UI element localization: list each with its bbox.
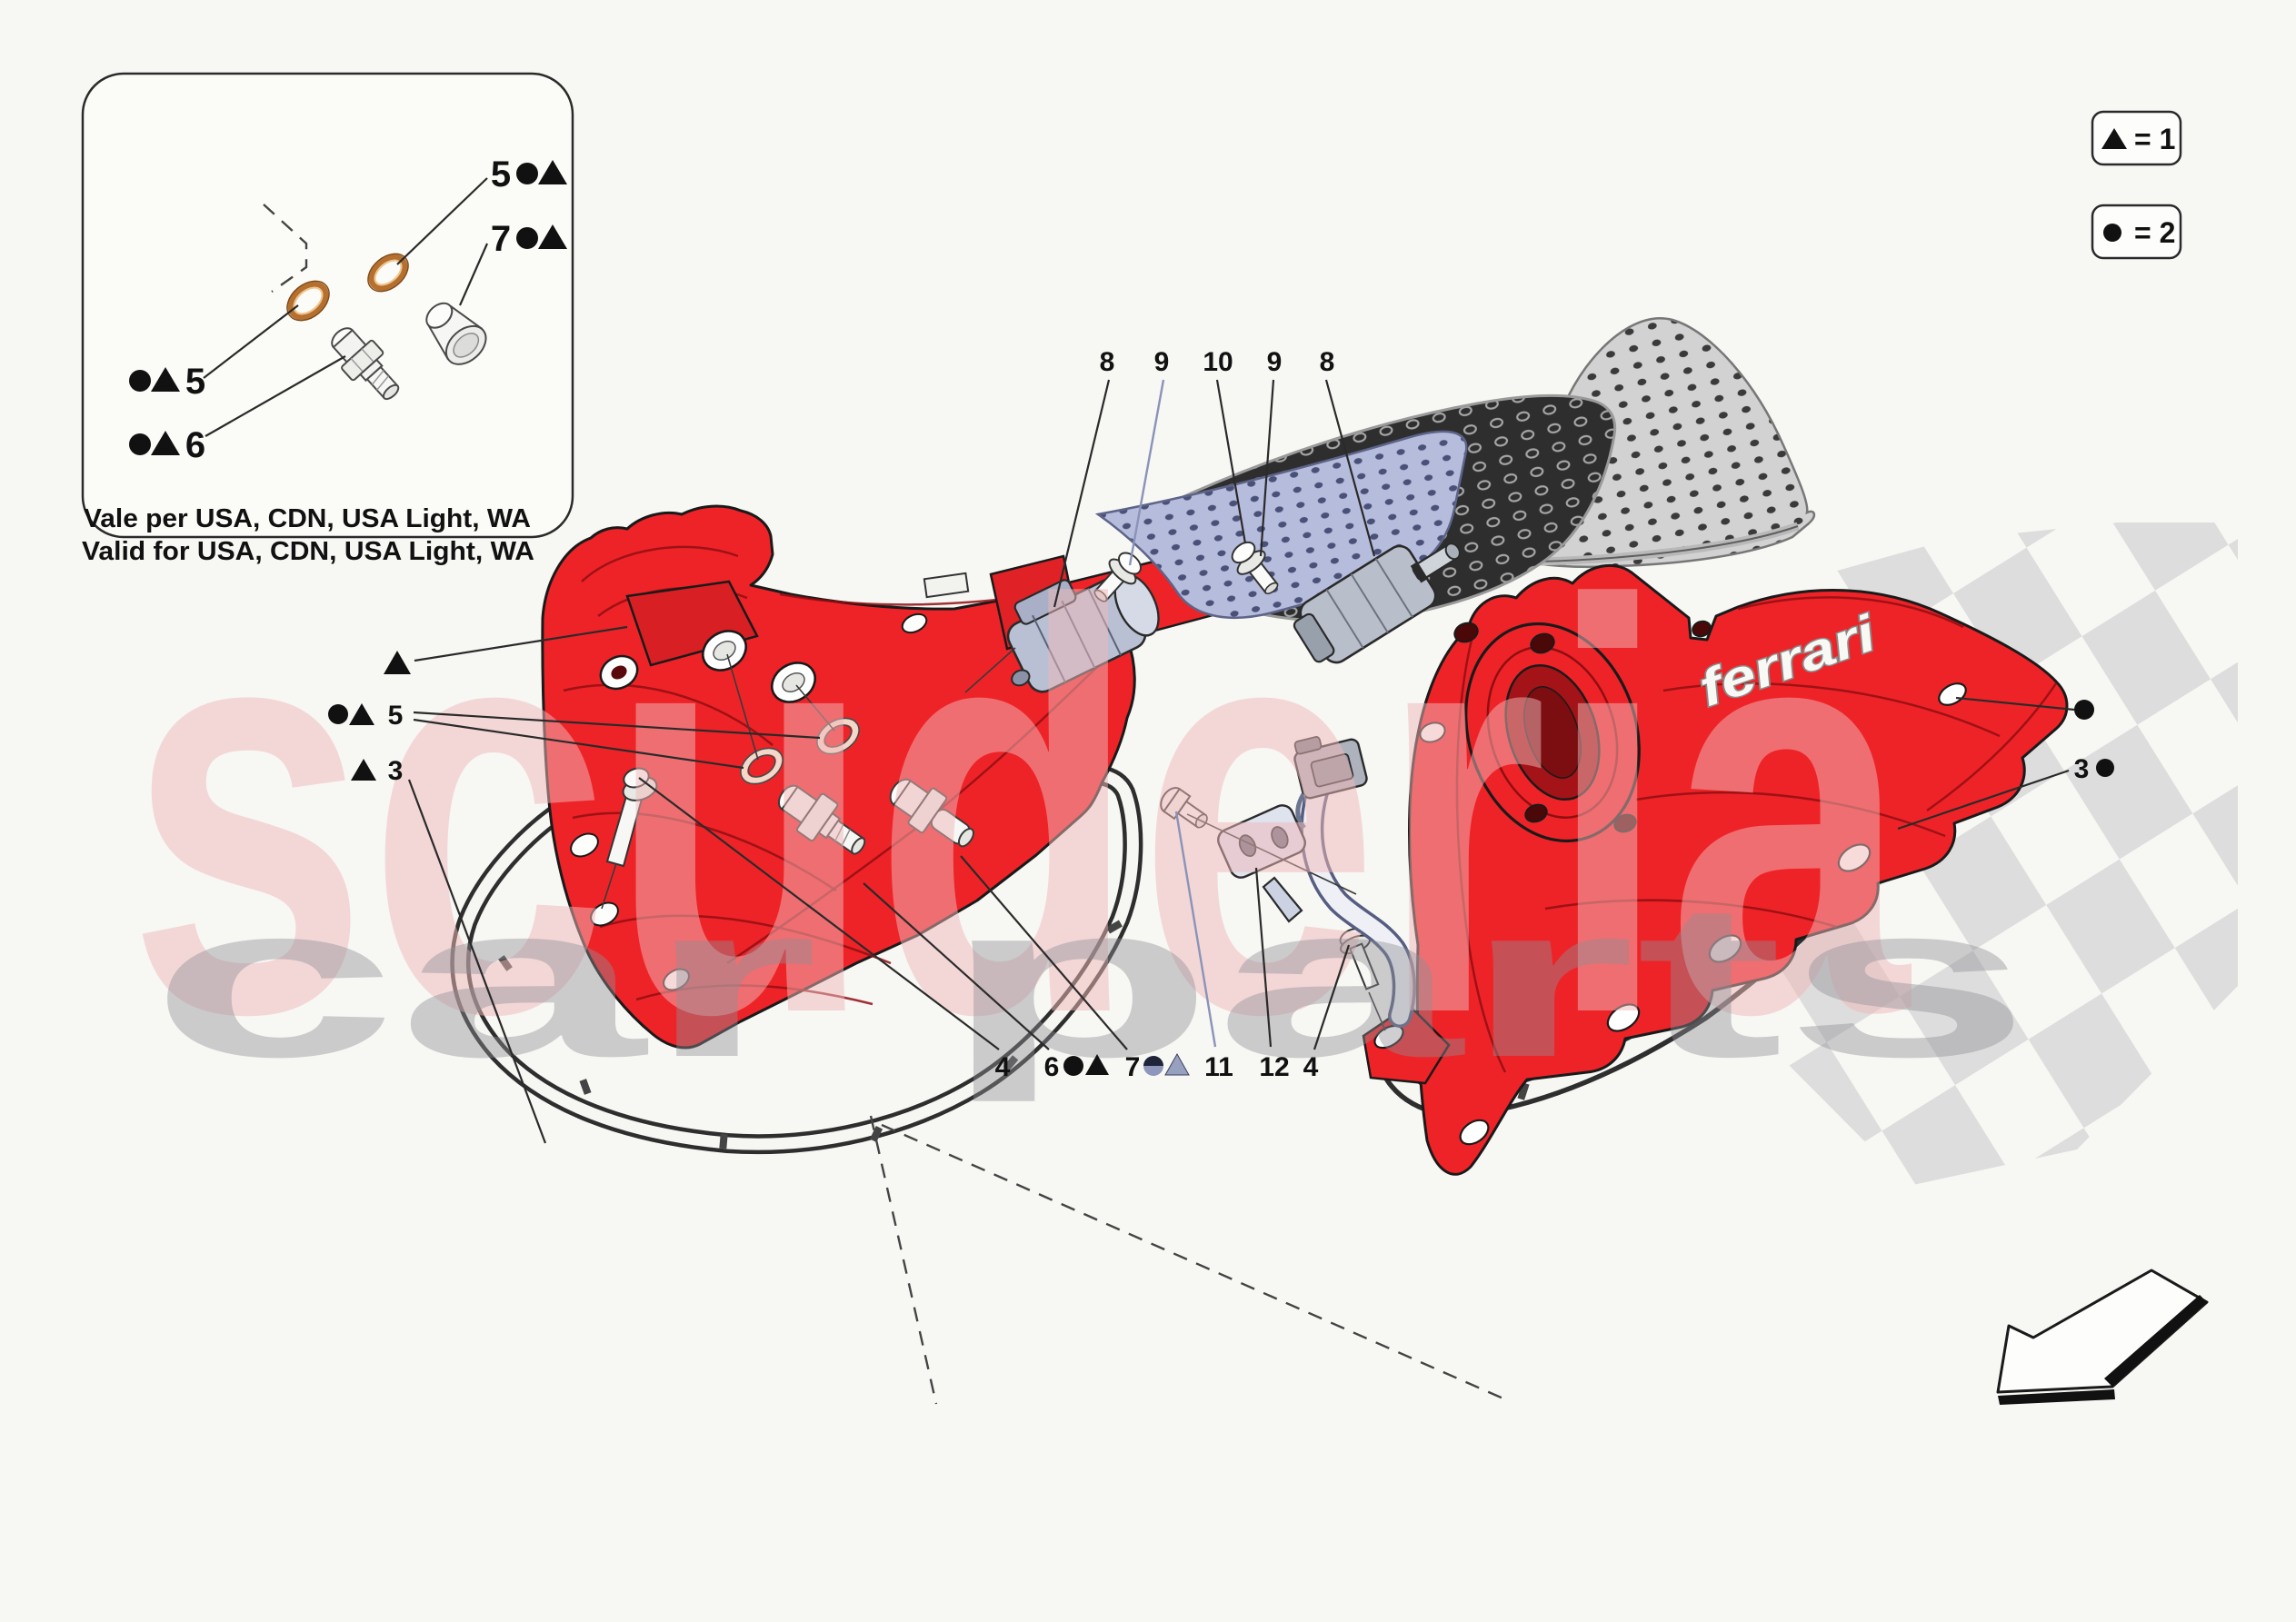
callout-5-left: 5 [388, 701, 404, 731]
watermark: scuderia car parts [127, 484, 2031, 1134]
inset-callout-6: 6 [185, 425, 205, 465]
callout-4b: 4 [1303, 1052, 1319, 1082]
circle-icon [516, 227, 538, 249]
legend-circle-label: = 2 [2134, 216, 2175, 249]
callout-12: 12 [1259, 1052, 1289, 1082]
callout-8-right: 8 [1320, 347, 1335, 377]
callout-8-left: 8 [1100, 347, 1115, 377]
parts-diagram-page: ferrari [0, 0, 2296, 1622]
legend-circle-box: = 2 [2092, 205, 2181, 258]
cylinder-head-covers-diagram: ferrari [0, 0, 2296, 1622]
callout-6: 6 [1044, 1052, 1060, 1082]
circle-icon [328, 704, 348, 724]
inset-callout-7: 7 [491, 219, 511, 259]
callout-9-left: 9 [1154, 347, 1170, 377]
circle-icon [129, 433, 151, 455]
callout-9-right: 9 [1267, 347, 1283, 377]
callout-11: 11 [1204, 1052, 1233, 1082]
callout-3-left: 3 [388, 756, 404, 786]
callout-7: 7 [1125, 1052, 1141, 1082]
inset-callout-5-top: 5 [491, 154, 511, 194]
circle-icon [2096, 759, 2114, 777]
circle-icon [1063, 1056, 1083, 1076]
circle-icon [2103, 224, 2121, 242]
legend-triangle-box: = 1 [2092, 112, 2181, 164]
callout-4a: 4 [995, 1052, 1011, 1082]
legend-triangle-label: = 1 [2134, 123, 2175, 155]
callout-10: 10 [1203, 347, 1233, 377]
circle-icon [516, 163, 538, 184]
circle-icon [129, 370, 151, 392]
inset-note-line1: Vale per USA, CDN, USA Light, WA [84, 504, 531, 533]
inset-box: 5 7 5 6 Vale per USA, CDN, USA Light, WA… [82, 74, 573, 566]
inset-callout-5-left: 5 [185, 362, 205, 402]
inset-note-line2: Valid for USA, CDN, USA Light, WA [82, 537, 534, 566]
circle-icon [2074, 700, 2094, 720]
callout-3-right: 3 [2074, 754, 2090, 784]
